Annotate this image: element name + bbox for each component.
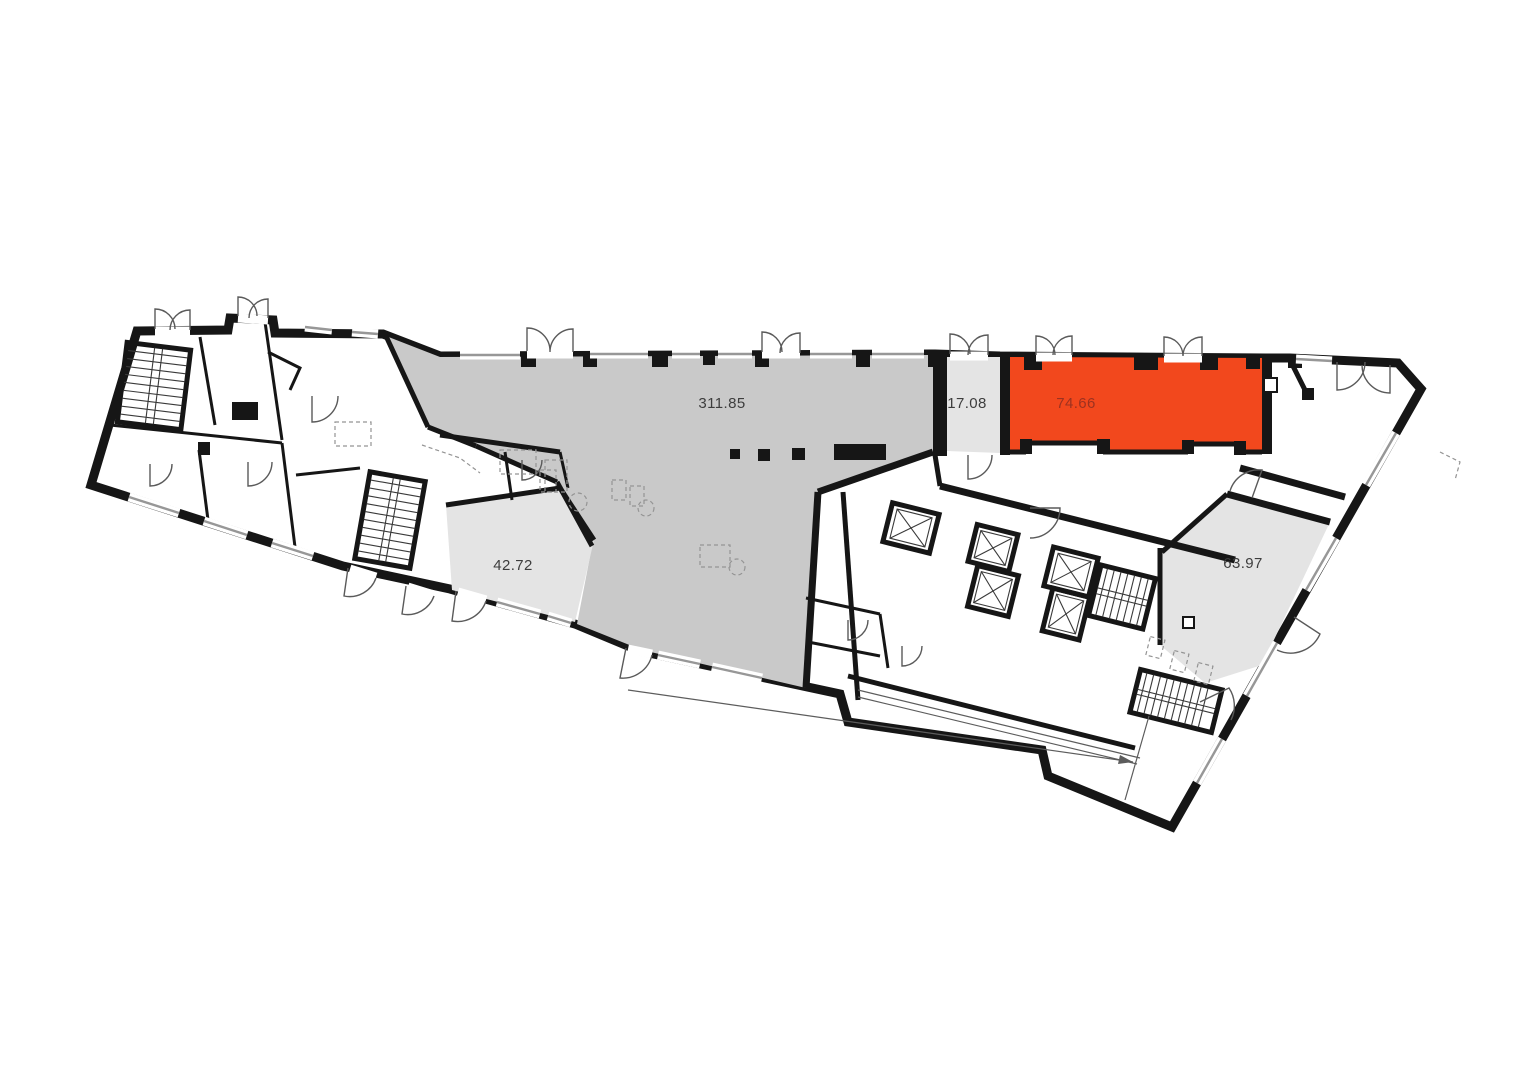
floor-plan-canvas: 311.85 17.08 74.66 42.72 63.97 [0,0,1519,1080]
elevator-shaft [883,503,939,553]
unit-regions [386,336,1330,688]
unit-selected-region[interactable] [1008,357,1266,452]
label-open-space: 311.85 [698,395,745,412]
elevator-shaft [1042,588,1090,640]
elevator-shaft [968,566,1019,617]
elevators [883,503,1098,640]
floor-plan: 311.85 17.08 74.66 42.72 63.97 [0,0,1519,1080]
stairwell-core [1089,565,1156,629]
label-selected-unit: 74.66 [1056,395,1096,412]
label-unit-63: 63.97 [1223,555,1263,572]
label-lobby: 17.08 [947,395,987,412]
label-unit-42: 42.72 [493,557,533,574]
